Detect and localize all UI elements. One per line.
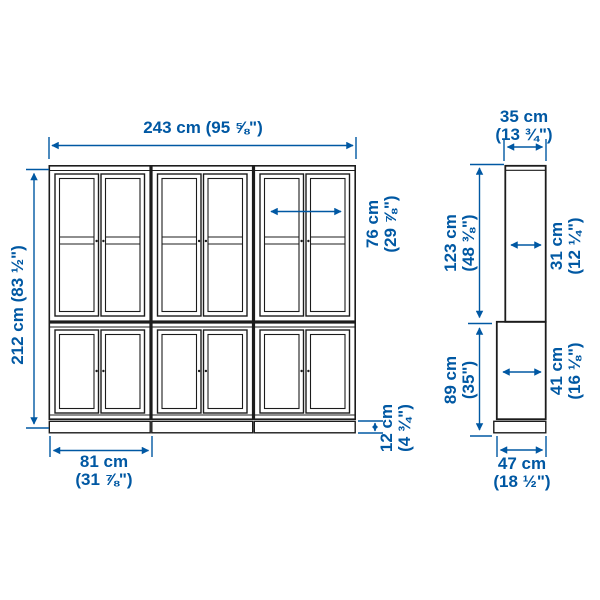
- dim-inner-width-label: 76 cm (29 ⅞"): [363, 169, 401, 279]
- dim-unit-width-label: 81 cm (31 ⅞"): [34, 453, 174, 489]
- dim-top-depth-label: 35 cm (13 ¾"): [454, 108, 594, 144]
- dim-bottom-depth-label: 47 cm (18 ½"): [452, 455, 592, 491]
- dimension-diagram: 243 cm (95 ⅝") 212 cm (83 ½") 76 cm (29 …: [0, 0, 600, 600]
- side-view-drawing: [494, 166, 546, 433]
- dim-total-height-label: 212 cm (83 ½"): [9, 220, 29, 390]
- dim-upper-inner-depth-label: 31 cm (12 ¼"): [547, 191, 585, 301]
- dim-total-width-label: 243 cm (95 ⅝"): [73, 119, 333, 137]
- cabinet-line-drawing: [0, 0, 600, 600]
- front-plinths: [49, 421, 355, 433]
- front-view-drawing: [49, 166, 355, 433]
- dim-lower-height-label: 89 cm (35"): [441, 325, 479, 435]
- dim-upper-height-label: 123 cm (48 ⅜"): [441, 188, 479, 298]
- dim-lower-inner-depth-label: 41 cm (16 ⅛"): [547, 316, 585, 426]
- dim-plinth-height-label: 12 cm (4 ¾"): [377, 373, 415, 483]
